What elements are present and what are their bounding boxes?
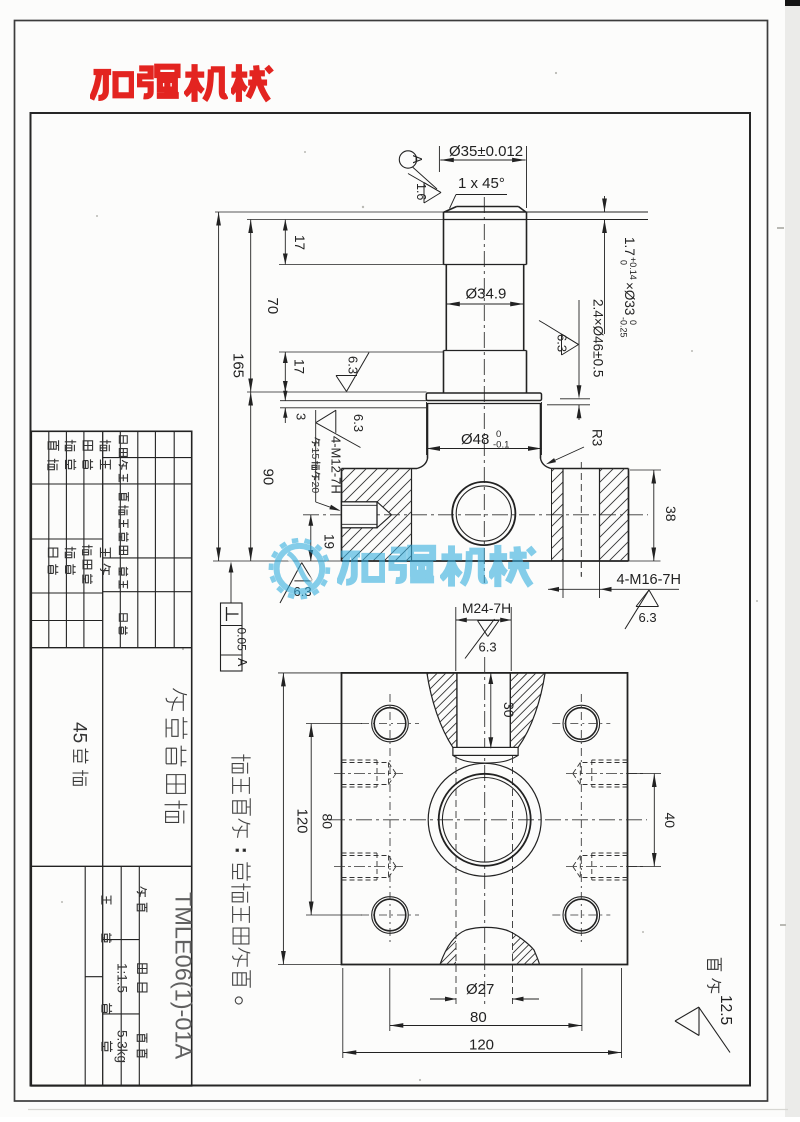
svg-text:A: A bbox=[235, 658, 249, 667]
svg-text:TMLE06(1)-01A: TMLE06(1)-01A bbox=[171, 892, 197, 1059]
svg-text:0.05: 0.05 bbox=[235, 628, 249, 652]
svg-text:19: 19 bbox=[322, 534, 337, 549]
svg-text:1:1.5: 1:1.5 bbox=[115, 963, 130, 993]
svg-text:0: 0 bbox=[496, 429, 501, 440]
svg-text:0: 0 bbox=[619, 260, 629, 265]
svg-text:17: 17 bbox=[292, 359, 307, 374]
svg-text:1.7: 1.7 bbox=[622, 237, 637, 256]
svg-text:Ø34.9: Ø34.9 bbox=[466, 286, 507, 303]
svg-text:6.3: 6.3 bbox=[351, 414, 366, 432]
svg-text:+0.14: +0.14 bbox=[628, 257, 638, 280]
svg-text:-0.25: -0.25 bbox=[619, 317, 629, 338]
svg-text:90: 90 bbox=[260, 469, 277, 486]
svg-text:M24-7H: M24-7H bbox=[462, 601, 511, 616]
svg-text:12.5: 12.5 bbox=[717, 995, 734, 1025]
svg-text:5.3kg: 5.3kg bbox=[115, 1030, 130, 1063]
svg-text:3: 3 bbox=[294, 413, 309, 420]
svg-text:Ø27: Ø27 bbox=[466, 981, 494, 998]
svg-text:A: A bbox=[410, 155, 424, 164]
svg-text:15: 15 bbox=[309, 448, 321, 460]
svg-text:40: 40 bbox=[662, 813, 678, 829]
svg-text:1 x 45°: 1 x 45° bbox=[458, 175, 505, 192]
svg-text:Ø35±0.012: Ø35±0.012 bbox=[449, 143, 523, 160]
svg-text:Ø48: Ø48 bbox=[461, 431, 489, 448]
svg-text:4-M16-7H: 4-M16-7H bbox=[617, 572, 681, 588]
svg-text:38: 38 bbox=[663, 506, 679, 522]
svg-text:30: 30 bbox=[501, 702, 517, 718]
svg-text:45: 45 bbox=[69, 722, 90, 743]
svg-text:6.3: 6.3 bbox=[346, 356, 361, 374]
svg-text:80: 80 bbox=[470, 1009, 487, 1026]
svg-text:6.3: 6.3 bbox=[639, 610, 657, 625]
svg-text:120: 120 bbox=[469, 1037, 494, 1054]
svg-text:R3: R3 bbox=[590, 429, 605, 446]
svg-text:-0.1: -0.1 bbox=[493, 440, 509, 451]
svg-text:×Ø33: ×Ø33 bbox=[622, 282, 637, 315]
svg-text:80: 80 bbox=[320, 814, 336, 830]
svg-text:6.3: 6.3 bbox=[479, 640, 497, 655]
svg-text:0: 0 bbox=[628, 320, 638, 325]
svg-text:2.4×Ø46±0.5: 2.4×Ø46±0.5 bbox=[591, 299, 606, 377]
svg-text:70: 70 bbox=[264, 298, 281, 315]
svg-text:4-M12-7H: 4-M12-7H bbox=[329, 436, 344, 494]
svg-text:120: 120 bbox=[294, 809, 311, 834]
svg-text:1.6: 1.6 bbox=[414, 183, 428, 200]
svg-text:20: 20 bbox=[309, 482, 321, 494]
svg-text:6.3: 6.3 bbox=[555, 334, 570, 352]
svg-text:17: 17 bbox=[292, 235, 307, 250]
svg-text:165: 165 bbox=[230, 353, 247, 378]
